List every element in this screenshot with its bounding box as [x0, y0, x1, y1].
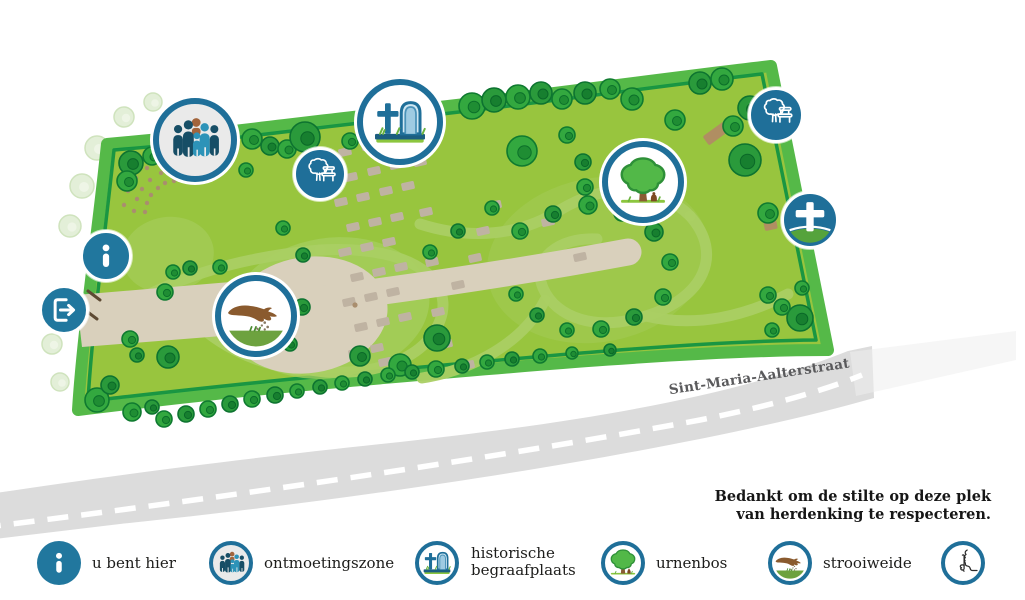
legend-item-historische-begraafplaats — [415, 541, 459, 585]
gravestone-cross-icon — [421, 547, 453, 579]
people-icon — [166, 111, 224, 169]
marker-rustpunt-oost — [748, 87, 804, 143]
gravestone-cross-icon — [370, 92, 430, 152]
exit-icon — [47, 293, 81, 327]
legend-item-ontmoetingszone — [209, 541, 253, 585]
marker-historische-begraafplaats — [357, 79, 443, 165]
scattering-hand-icon — [772, 545, 808, 581]
tree-urn-icon — [614, 153, 672, 211]
marker-uitgang — [39, 285, 89, 335]
silence-icon — [946, 546, 981, 581]
cemetery-park-map-sign: Sint-Maria-Aalterstraat Bedankt om de st… — [0, 0, 1025, 600]
legend-item-stilte — [941, 541, 985, 585]
marker-u-bent-hier — [80, 230, 132, 282]
legend-label-u-bent-hier: u bent hier — [92, 555, 176, 572]
info-icon — [89, 239, 123, 273]
marker-urnenbos — [602, 141, 684, 223]
silence-notice-line2: van herdenking te respecteren. — [715, 506, 991, 524]
marker-rustpunt-west — [293, 147, 347, 201]
info-icon — [44, 548, 74, 578]
legend-label-strooiweide: strooiweide — [823, 555, 912, 572]
legend-label-historische-begraafplaats: historische begraafplaats — [471, 545, 583, 579]
legend-label-urnenbos: urnenbos — [656, 555, 727, 572]
marker-ontmoetingszone — [153, 98, 237, 182]
people-icon — [216, 548, 247, 579]
marker-strooiweide — [215, 275, 297, 357]
tree-bench-icon — [300, 154, 340, 194]
cross-icon — [784, 194, 836, 246]
legend-label-ontmoetingszone: ontmoetingszone — [264, 555, 394, 572]
scattering-hand-icon — [221, 281, 291, 351]
silence-notice: Bedankt om de stilte op deze plek van he… — [715, 488, 991, 523]
marker-kruis — [781, 191, 839, 249]
legend-item-urnenbos — [601, 541, 645, 585]
tree-urn-icon — [607, 547, 639, 579]
legend-item-strooiweide — [768, 541, 812, 585]
legend-item-u-bent-hier — [37, 541, 81, 585]
tree-bench-icon — [755, 94, 797, 136]
silence-notice-line1: Bedankt om de stilte op deze plek — [715, 488, 991, 506]
